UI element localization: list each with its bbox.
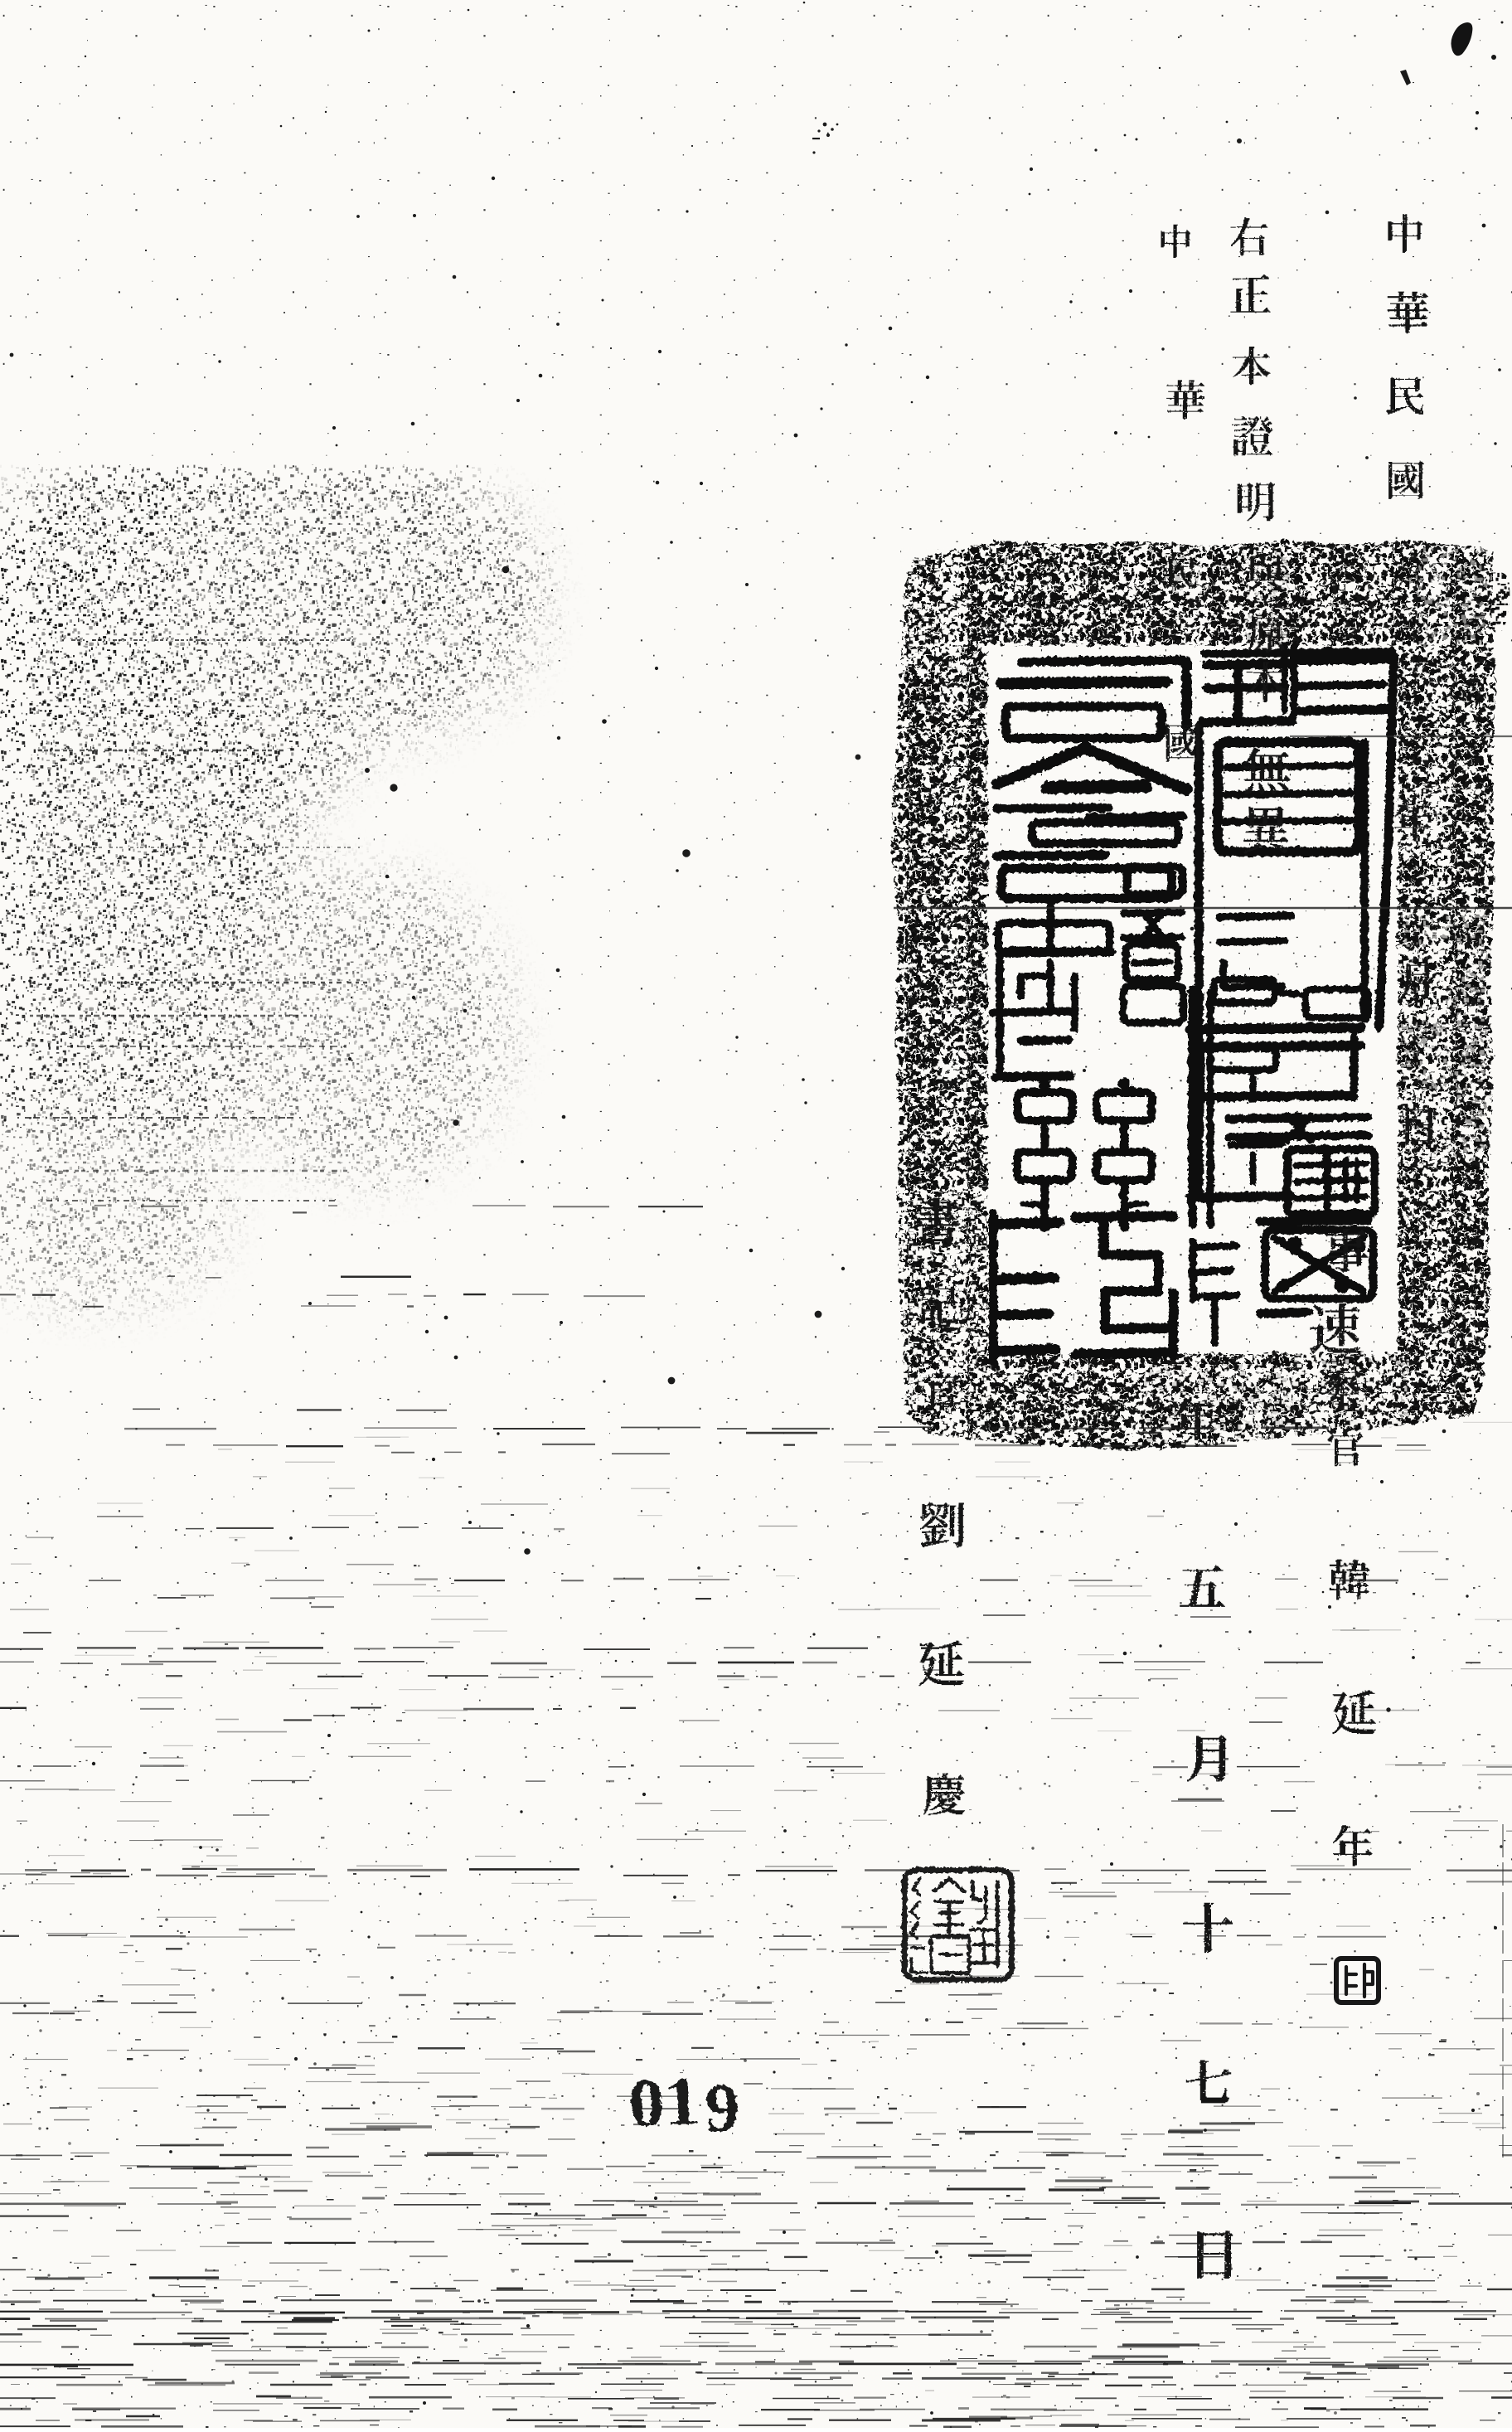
svg-text:9: 9 <box>703 2067 740 2144</box>
svg-text:01: 01 <box>626 2061 700 2140</box>
